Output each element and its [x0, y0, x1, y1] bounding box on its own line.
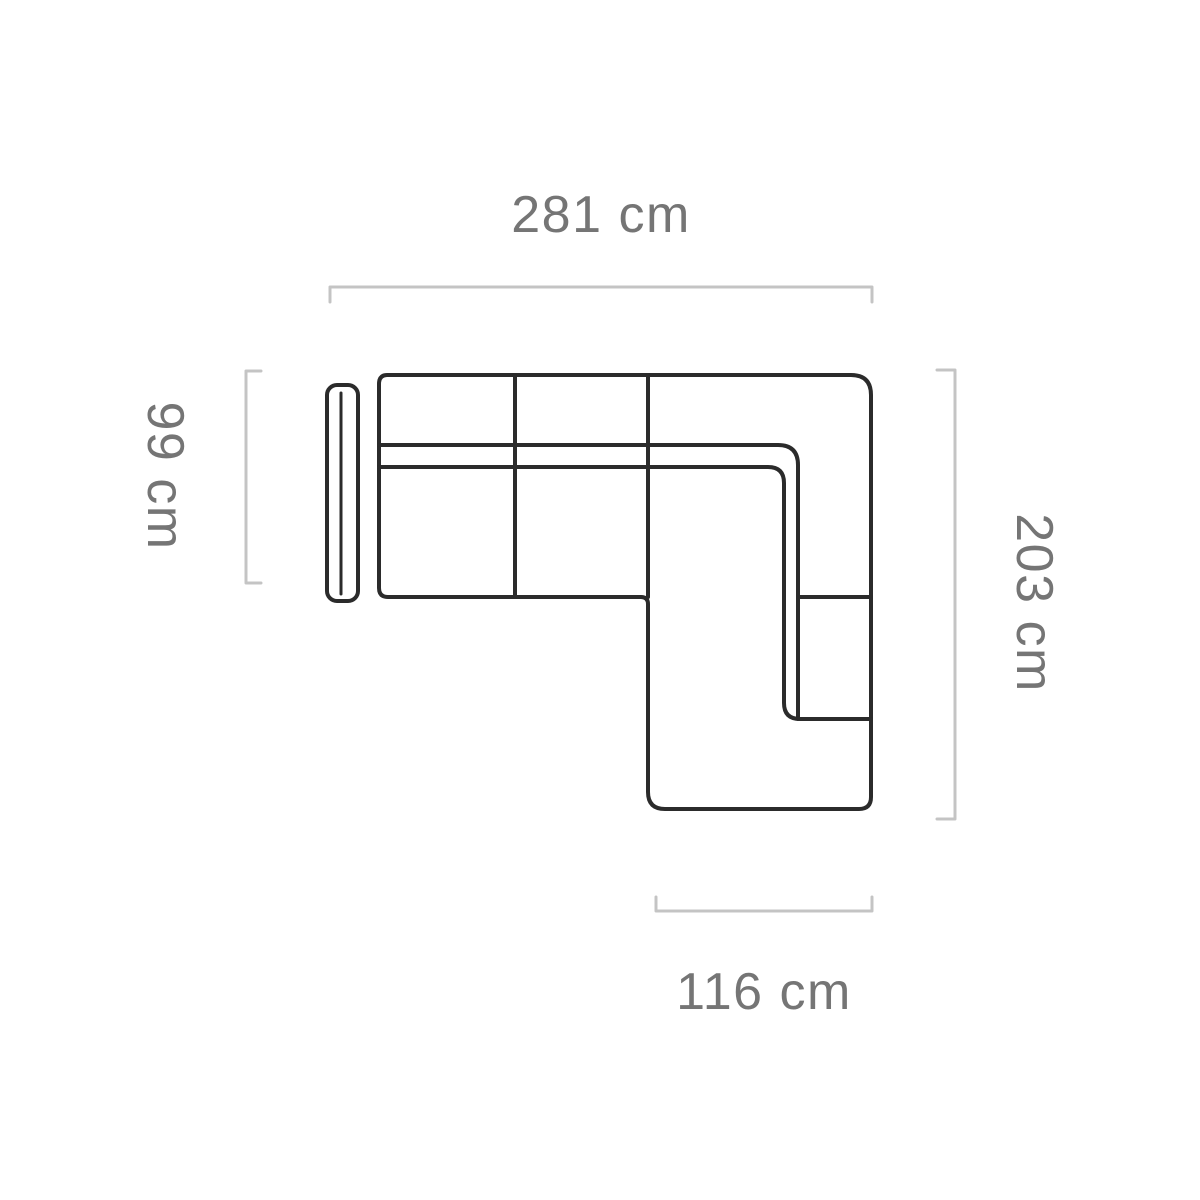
depth-dimension-line: [246, 371, 261, 583]
diagram-canvas: 281 cm 99 cm 203 cm 116 cm: [0, 0, 1200, 1200]
sofa-dimension-diagram: 281 cm 99 cm 203 cm 116 cm: [0, 0, 1200, 1200]
length-dimension-line: [937, 370, 955, 819]
width-dimension-label: 281 cm: [511, 186, 691, 244]
length-dimension-label: 203 cm: [1005, 513, 1063, 693]
sofa-backrest-inner-line-outer: [379, 445, 798, 719]
depth-dimension-label: 99 cm: [136, 401, 194, 550]
chaise-width-dimension-line: [656, 897, 872, 911]
dimension-labels-group: 281 cm 99 cm 203 cm 116 cm: [136, 186, 1063, 1021]
sofa-outline-group: [327, 375, 871, 809]
chaise-width-dimension-label: 116 cm: [676, 963, 852, 1021]
width-dimension-line: [330, 287, 872, 302]
